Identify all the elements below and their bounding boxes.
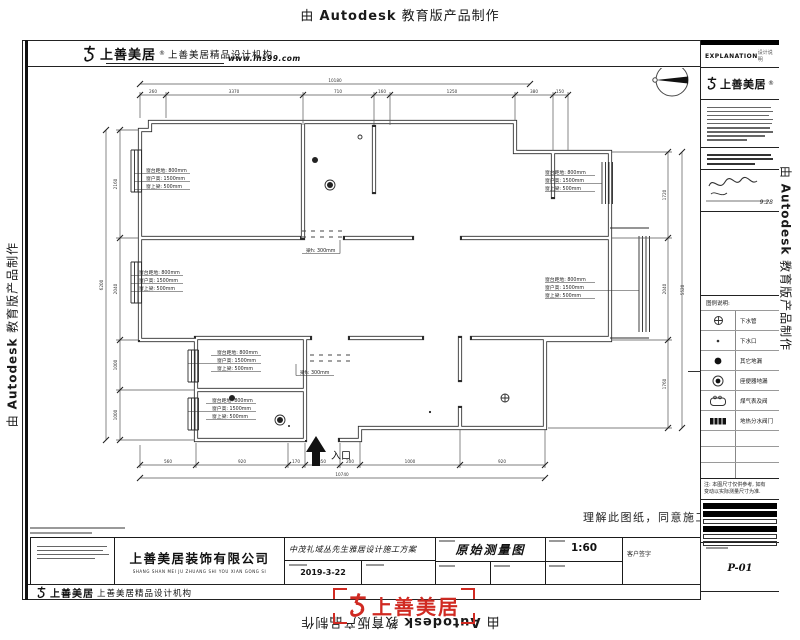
registered-mark: ® — [768, 80, 774, 87]
svg-text:窗上梁: 500mm: 窗上梁: 500mm — [139, 285, 175, 292]
svg-text:窗台距地: 800mm: 窗台距地: 800mm — [146, 167, 187, 174]
panel-logo: 上善美居® — [701, 68, 779, 100]
stamp-bracket — [333, 613, 347, 624]
logo-name: 上善美居 — [100, 44, 156, 63]
titleblock-sub-cell — [435, 561, 491, 585]
legend-label: 煤气表及阀 — [736, 391, 779, 410]
svg-text:窗户高: 1500mm: 窗户高: 1500mm — [545, 284, 584, 291]
stamp-bracket — [461, 613, 475, 624]
svg-text:10180: 10180 — [328, 78, 342, 83]
legend-label: 下水口 — [736, 331, 779, 350]
watermark-top: 由 Autodesk 教育版产品制作 — [0, 5, 800, 24]
sheet-number-cell: P-01 — [701, 547, 779, 592]
svg-text:920: 920 — [238, 459, 246, 464]
stamp-name: 上善美居 — [372, 591, 460, 620]
svg-text:梁h: 300mm: 梁h: 300mm — [306, 247, 336, 254]
company-name: 上善美居装饰有限公司 — [129, 548, 269, 567]
panel-empty-box — [701, 212, 779, 296]
svg-text:窗户高: 1500mm: 窗户高: 1500mm — [217, 357, 256, 364]
explanation-subtitle: 设计说明 — [758, 49, 775, 63]
stamp-s-icon — [347, 592, 369, 619]
titleblock-notes-cell — [30, 537, 115, 585]
red-stamp-logo: 上善美居 — [333, 588, 475, 624]
svg-text:窗户高: 1500mm: 窗户高: 1500mm — [139, 277, 178, 284]
panel-remark: 注: 本图尺寸仅供参考, 如有 变动以实际测量尺寸为准. — [701, 478, 779, 500]
svg-text:2040: 2040 — [113, 283, 118, 294]
legend-symbol-drain-outlet — [701, 331, 736, 350]
svg-text:窗上梁: 500mm: 窗上梁: 500mm — [146, 183, 182, 190]
svg-text:6200: 6200 — [99, 279, 104, 290]
logo-s-icon — [36, 586, 47, 599]
legend-empty-row — [701, 446, 779, 462]
legend-label: 座便器地漏 — [736, 371, 779, 390]
drawing-title: 原始测量图 — [436, 541, 545, 558]
stamp-bracket — [461, 588, 475, 599]
legend-empty-row — [701, 430, 779, 446]
footer-logo-name: 上善美居 — [50, 585, 94, 600]
legend-row: 下水口 — [701, 330, 779, 350]
svg-text:窗上梁: 500mm: 窗上梁: 500mm — [217, 365, 253, 372]
window-annotation: 窗台距地: 800mm 窗户高: 1500mm 窗上梁: 500mm — [134, 167, 190, 190]
svg-text:2040: 2040 — [662, 283, 667, 294]
dim-lines-top — [140, 84, 568, 150]
svg-text:1000: 1000 — [405, 459, 416, 464]
window-annotation: 窗台距地: 800mm 窗户高: 1500mm 窗上梁: 500mm — [131, 269, 183, 292]
beam-annotation: 梁h: 300mm — [302, 240, 340, 254]
svg-text:170: 170 — [292, 459, 300, 464]
project-name: 中茂礼域丛先生雅居设计施工方案 — [289, 544, 417, 555]
panel-bold-note — [701, 148, 779, 170]
agreement-note: 理解此图纸，同意施工 — [570, 509, 708, 525]
svg-text:560: 560 — [164, 459, 172, 464]
legend-row: 地热分水阀门 — [701, 410, 779, 430]
panel-logo-name: 上善美居 — [720, 76, 766, 92]
company-pinyin: SHANG SHAN MEI JU ZHUANG SHI YOU XIAN GO… — [133, 569, 267, 574]
watermark-left: 由 Autodesk 教育版产品制作 — [4, 185, 21, 485]
drain-outlet-symbol — [429, 411, 431, 413]
titleblock-extra-cell — [361, 560, 436, 585]
design-date: 2019-3-22 — [285, 568, 361, 577]
svg-text:1250: 1250 — [447, 89, 458, 94]
toilet-drain-symbol — [277, 417, 283, 423]
explanation-header: EXPLANATION 设计说明 — [701, 45, 779, 68]
design-notes-paragraph — [701, 100, 779, 148]
svg-text:2160: 2160 — [113, 178, 118, 189]
svg-text:1760: 1760 — [662, 378, 667, 389]
titleblock-scale-cell: 1:60 — [545, 537, 623, 562]
svg-text:380: 380 — [530, 89, 538, 94]
stamp-bracket — [333, 588, 347, 599]
beam-opening-1 — [302, 231, 344, 237]
legend-row: 煤气表及阀 — [701, 390, 779, 410]
legend-leader-line — [688, 371, 701, 372]
client-sign-label: 客户签字 — [627, 551, 651, 558]
sheet-remark-lines — [30, 527, 140, 534]
svg-text:窗台距地: 800mm: 窗台距地: 800mm — [545, 276, 586, 283]
drain-outlet-symbol — [358, 135, 362, 139]
floor-drain-symbol — [312, 157, 318, 163]
window-annotation: 窗台距地: 800mm 窗户高: 1500mm 窗上梁: 500mm — [545, 169, 602, 192]
svg-text:1000: 1000 — [113, 409, 118, 420]
legend-label: 地热分水阀门 — [736, 411, 779, 430]
website-url: www.lhs99.com — [228, 54, 301, 63]
svg-text:260: 260 — [149, 89, 157, 94]
panel-black-bars — [701, 500, 779, 543]
titleblock-drawing-cell: 原始测量图 — [435, 537, 546, 562]
sheet-left-bar — [25, 40, 28, 600]
titleblock-project-cell: 中茂礼域丛先生雅居设计施工方案 — [284, 537, 436, 561]
north-compass-icon — [653, 68, 688, 96]
footer-logo-subtitle: 上善美居精品设计机构 — [97, 587, 192, 599]
titleblock-company-cell: 上善美居装饰有限公司 SHANG SHAN MEI JU ZHUANG SHI … — [114, 537, 285, 585]
header-rule — [106, 63, 224, 64]
watermark-right: 由 Autodesk 教育版产品制作 — [778, 109, 795, 409]
drain-outlet-symbol — [288, 425, 290, 427]
svg-text:5520: 5520 — [680, 284, 685, 295]
svg-text:窗台距地: 800mm: 窗台距地: 800mm — [545, 169, 586, 176]
svg-text:窗台距地: 800mm: 窗台距地: 800mm — [139, 269, 180, 276]
logo-s-icon — [82, 45, 97, 63]
right-panel: EXPLANATION 设计说明 上善美居® — [700, 40, 779, 600]
logo-s-icon — [706, 76, 718, 91]
legend-row: 其它地漏 — [701, 350, 779, 370]
svg-text:150: 150 — [556, 89, 564, 94]
svg-text:窗户高: 1500mm: 窗户高: 1500mm — [212, 405, 251, 412]
signature-date: 9.28 — [760, 199, 773, 206]
titleblock-date-cell: 2019-3-22 — [284, 560, 362, 585]
svg-text:1000: 1000 — [113, 359, 118, 370]
legend-row: 座便器地漏 — [701, 370, 779, 390]
legend-symbol-gas-meter — [701, 391, 736, 410]
beam-opening-2 — [310, 355, 350, 361]
svg-text:10740: 10740 — [335, 472, 349, 477]
svg-text:3370: 3370 — [229, 89, 240, 94]
legend-symbol-heat-manifold — [701, 411, 736, 430]
beam-annotation: 梁h: 300mm — [296, 364, 334, 376]
legend-empty-row — [701, 462, 779, 478]
legend-symbol-toilet-drain — [701, 371, 736, 390]
svg-text:窗户高: 1500mm: 窗户高: 1500mm — [545, 177, 584, 184]
svg-text:1720: 1720 — [662, 189, 667, 200]
svg-text:窗上梁: 500mm: 窗上梁: 500mm — [545, 292, 581, 299]
legend-row: 下水管 — [701, 310, 779, 330]
legend-symbol-floor-drain — [701, 351, 736, 370]
svg-text:窗上梁: 500mm: 窗上梁: 500mm — [212, 413, 248, 420]
legend-label: 下水管 — [736, 311, 779, 330]
legend-symbol-drain-pipe — [701, 311, 736, 330]
sheet-number: P-01 — [701, 563, 779, 574]
svg-text:710: 710 — [334, 89, 342, 94]
svg-text:窗户高: 1500mm: 窗户高: 1500mm — [146, 175, 185, 182]
cad-sheet-page: 由 Autodesk 教育版产品制作 由 Autodesk 教育版产品制作 由 … — [0, 0, 800, 640]
titleblock-unit-cell — [545, 561, 623, 585]
legend-label: 其它地漏 — [736, 351, 779, 370]
signature-area: 9.28 — [701, 170, 779, 212]
registered-mark: ® — [159, 50, 165, 57]
bay-window — [610, 228, 650, 338]
entrance-label: 入口 — [331, 451, 351, 462]
scale-value: 1:60 — [546, 542, 622, 554]
legend-title: 图例说明: — [701, 296, 779, 310]
toilet-drain-symbol — [327, 182, 333, 188]
svg-text:梁h: 300mm: 梁h: 300mm — [300, 369, 330, 376]
titleblock-sub-cell — [490, 561, 546, 585]
svg-text:窗台距地: 800mm: 窗台距地: 800mm — [212, 397, 253, 404]
floor-plan: 窗台距地: 800mm 窗户高: 1500mm 窗上梁: 500mm 窗台距地:… — [80, 68, 690, 548]
svg-text:窗台距地: 800mm: 窗台距地: 800mm — [217, 349, 258, 356]
svg-text:窗上梁: 500mm: 窗上梁: 500mm — [545, 185, 581, 192]
dim-ticks-top — [137, 81, 571, 98]
explanation-title: EXPLANATION — [705, 53, 758, 60]
svg-text:920: 920 — [498, 459, 506, 464]
svg-text:160: 160 — [378, 89, 386, 94]
window-annotation: 窗台距地: 800mm 窗户高: 1500mm 窗上梁: 500mm — [545, 276, 639, 299]
titleblock-client-sign-cell: 客户签字 — [622, 537, 701, 585]
walls-inner — [140, 122, 610, 440]
